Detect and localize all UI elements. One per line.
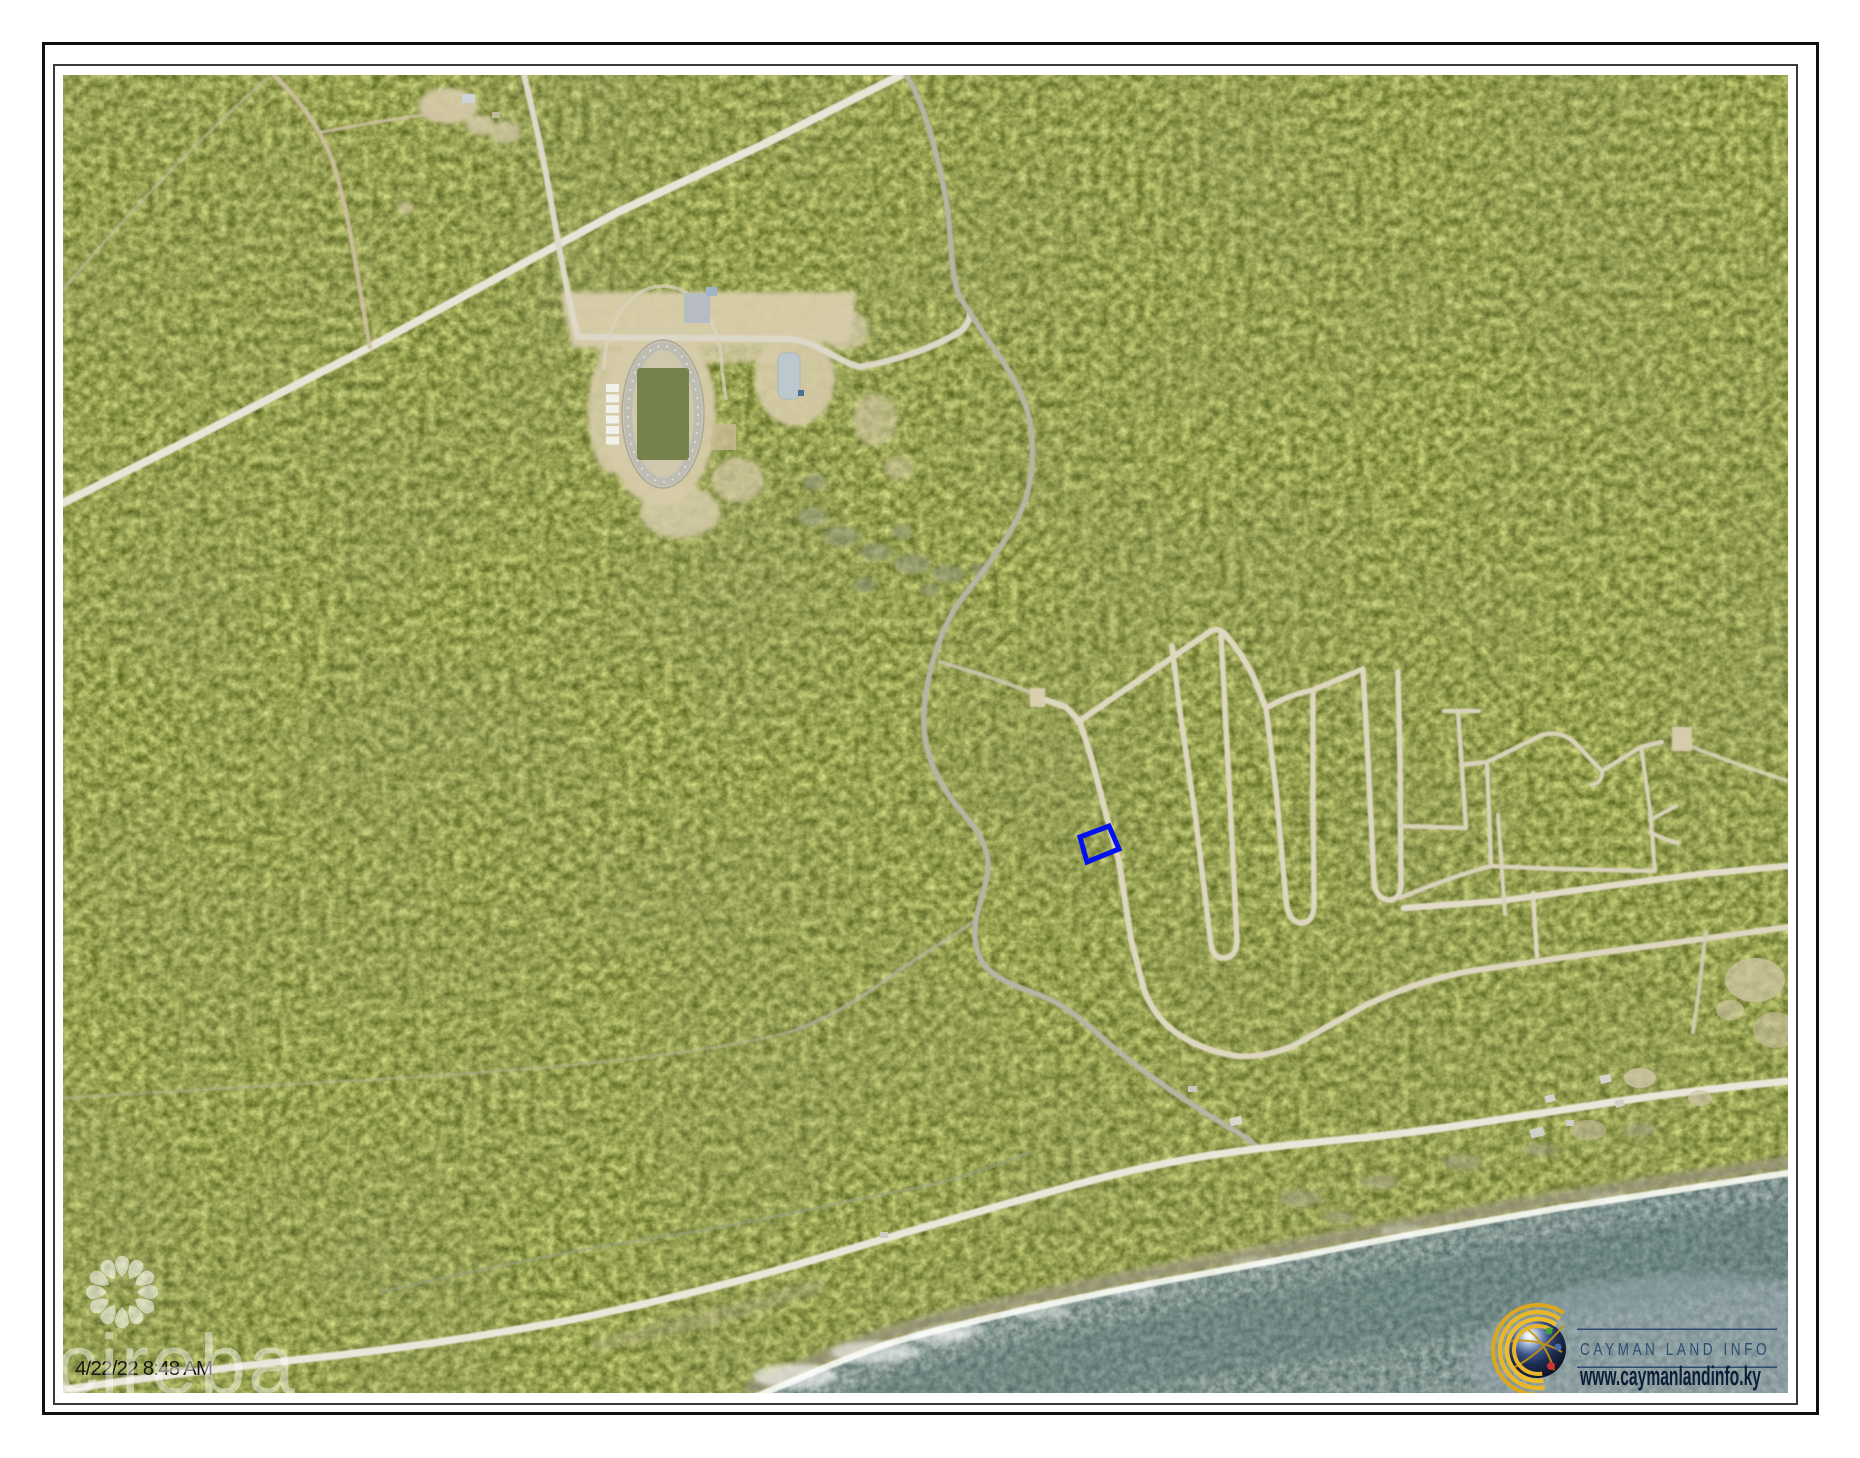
svg-text:www.caymanlandinfo.ky: www.caymanlandinfo.ky — [1579, 1361, 1761, 1391]
svg-text:cireba: cireba — [63, 1317, 297, 1393]
svg-text:CAYMAN LAND INFO: CAYMAN LAND INFO — [1580, 1341, 1770, 1360]
